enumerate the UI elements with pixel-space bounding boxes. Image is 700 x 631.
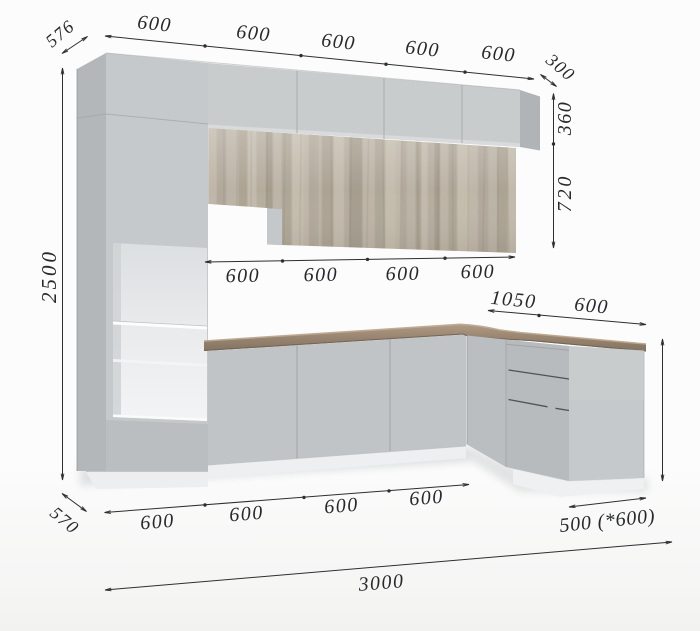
svg-text:720: 720 [554,174,576,212]
svg-text:600: 600 [320,29,357,54]
svg-text:600: 600 [323,494,359,519]
svg-text:600: 600 [385,263,420,286]
svg-text:2500: 2500 [37,249,61,303]
svg-text:1050: 1050 [490,287,538,313]
svg-text:600: 600 [139,510,175,535]
svg-text:600: 600 [408,486,444,511]
svg-text:600: 600 [460,261,495,284]
svg-text:360: 360 [554,101,576,137]
svg-text:600: 600 [225,265,260,288]
svg-text:600: 600 [136,11,173,36]
svg-text:3000: 3000 [357,570,406,596]
svg-text:600: 600 [228,502,264,527]
svg-text:600: 600 [573,293,609,318]
svg-text:600: 600 [235,21,272,46]
svg-text:600: 600 [480,41,517,66]
svg-text:600: 600 [303,264,338,287]
svg-text:600: 600 [404,36,441,61]
